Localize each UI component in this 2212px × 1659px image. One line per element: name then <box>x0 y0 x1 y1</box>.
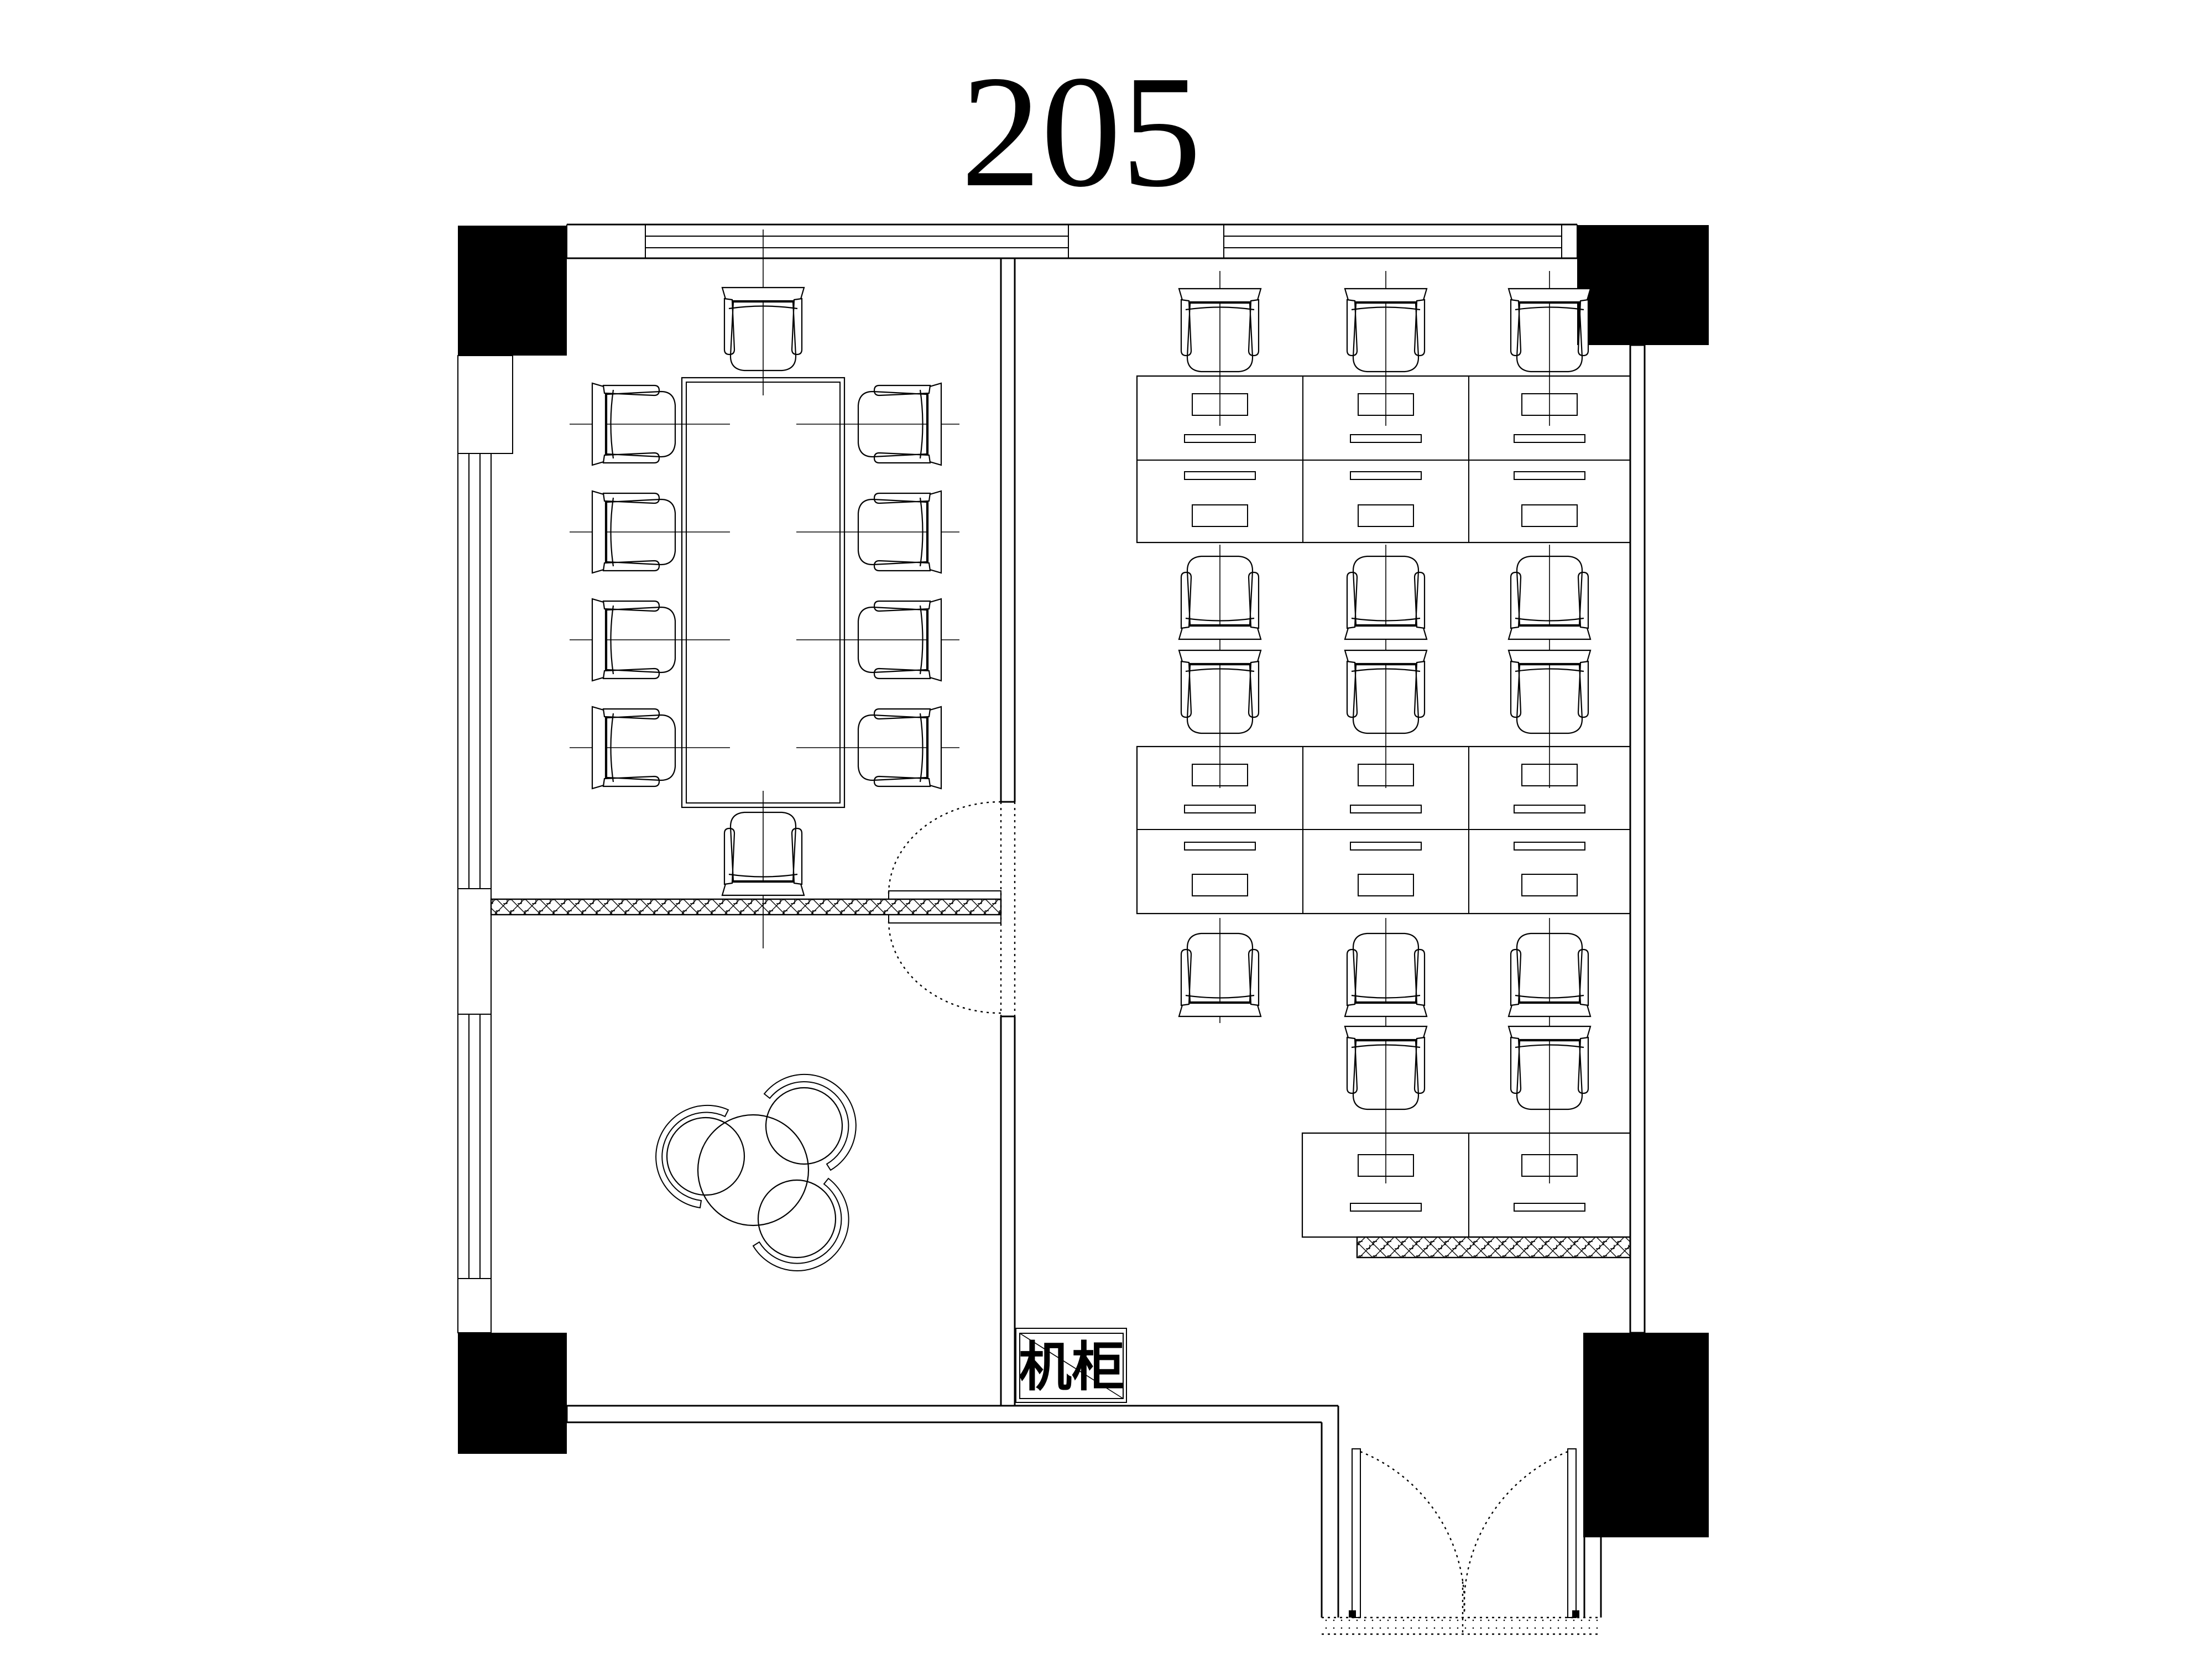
column-top-left <box>458 226 567 356</box>
page-title: 205 <box>961 43 1202 220</box>
window-top-right <box>1224 236 1562 248</box>
door-swing-arc-down <box>889 921 1001 1013</box>
entry-door-arc-right <box>1464 1452 1568 1614</box>
floor-plan-page: 205 <box>0 0 2212 1659</box>
desk-bank-1 <box>1137 376 1630 542</box>
lounge <box>656 1074 856 1271</box>
entry-threshold <box>1322 1618 1601 1634</box>
desk-bank-3 <box>1302 1133 1630 1237</box>
entry <box>1322 1406 1601 1634</box>
door-leaf-lower <box>889 915 1001 923</box>
conference-table-inner <box>686 382 840 803</box>
left-wall <box>458 356 513 1333</box>
lounge-chair-upper-right <box>764 1074 856 1170</box>
left-wall-pier-3 <box>458 1279 491 1333</box>
top-wall <box>567 225 1577 258</box>
floor-plan-svg: 205 <box>0 0 2212 1659</box>
structure <box>458 225 1709 1634</box>
column-bottom-left <box>458 1333 567 1454</box>
door-leaf-upper <box>889 891 1001 899</box>
equipment-cabinet: 机柜 <box>1016 1328 1126 1402</box>
desk-bank-2 <box>1137 747 1630 914</box>
lounge-chair-bottom <box>753 1178 849 1271</box>
vestibule-left-wall <box>1322 1406 1338 1618</box>
bottom-wall <box>567 1406 1338 1422</box>
window-left-2 <box>458 1014 491 1279</box>
column-bottom-right <box>1583 1333 1709 1537</box>
column-top-right <box>1577 225 1709 345</box>
vestibule-right-wall <box>1584 1537 1601 1618</box>
door-swing-arc-up <box>889 802 1001 894</box>
meeting-room <box>570 229 959 948</box>
window-top-left <box>645 236 1068 248</box>
left-wall-pier-2 <box>458 889 491 1014</box>
entry-hinge-left <box>1349 1610 1356 1618</box>
lounge-round-table <box>698 1115 808 1225</box>
right-wall <box>1630 345 1645 1333</box>
left-wall-pier-1 <box>458 356 513 453</box>
entry-door-arc-left <box>1360 1452 1464 1614</box>
hatched-wall-meeting <box>491 899 1001 915</box>
window-left-1 <box>458 453 491 889</box>
hatched-wall-office <box>1357 1237 1630 1258</box>
entry-door-leaf-right <box>1568 1449 1576 1618</box>
conference-table <box>682 378 844 807</box>
entry-hinge-right <box>1572 1610 1579 1618</box>
entry-door-leaf-left <box>1352 1449 1360 1618</box>
cabinet-label: 机柜 <box>1019 1338 1125 1397</box>
office-area <box>1137 271 1630 1237</box>
